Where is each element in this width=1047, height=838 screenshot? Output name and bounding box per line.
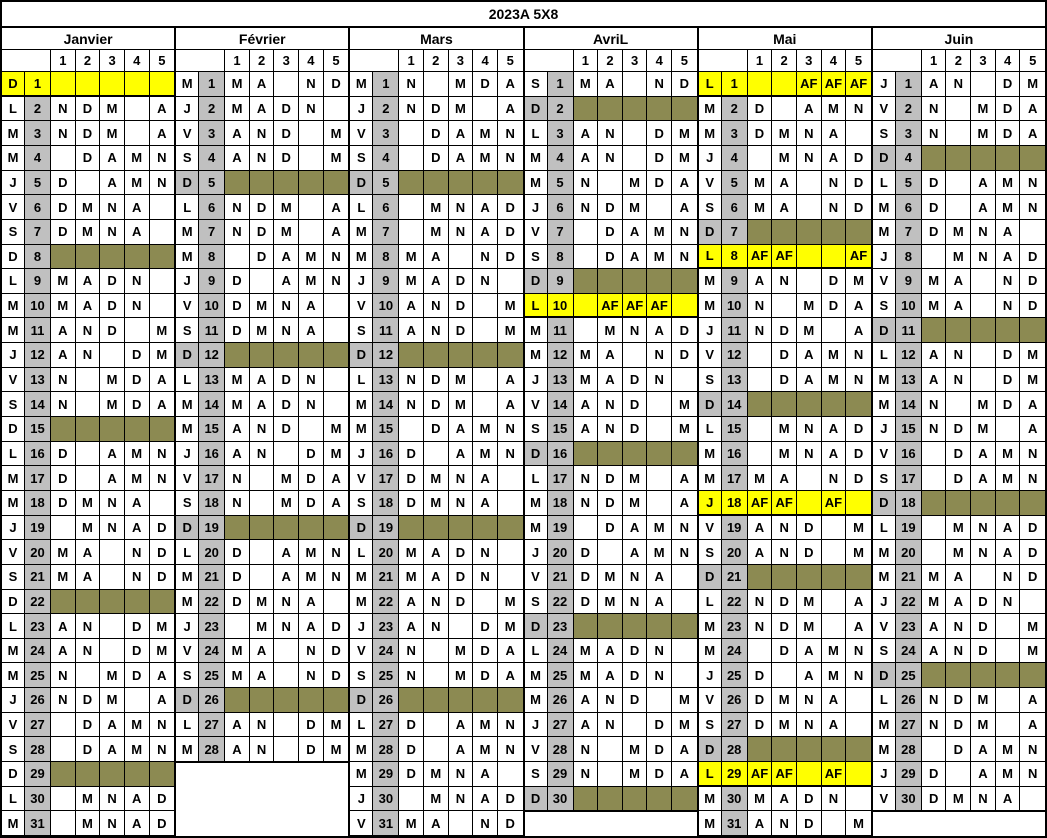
day-letter-cell: M (176, 565, 199, 590)
shift-cell (473, 590, 498, 615)
shift-cell: D (225, 269, 250, 294)
day-letter-cell: D (525, 614, 548, 639)
day-letter-cell: J (873, 762, 896, 787)
shift-cell: D (996, 392, 1021, 417)
shift-cell: D (324, 72, 349, 97)
shift-cell (598, 442, 623, 467)
shift-cell (225, 343, 250, 368)
shift-cell: A (623, 220, 648, 245)
shift-cell: D (846, 171, 871, 196)
day-number-cell: 14 (199, 392, 225, 417)
shift-cell (797, 466, 822, 491)
shift-cell: N (647, 663, 672, 688)
shift-cell (623, 72, 648, 97)
day-number-cell: 11 (25, 318, 51, 343)
shift-cell: A (922, 639, 947, 664)
shift-cell: M (76, 516, 101, 541)
shift-cell: M (76, 787, 101, 812)
shift-cell: N (996, 294, 1021, 319)
day-letter-cell: J (350, 97, 373, 122)
shift-cell: D (274, 392, 299, 417)
shift-cell: N (100, 811, 125, 836)
day-number-cell: 16 (373, 442, 399, 467)
day-number-cell: 13 (722, 368, 748, 393)
shift-cell: A (574, 146, 599, 171)
shift-cell: D (125, 663, 150, 688)
shift-cell (822, 737, 847, 762)
day-number-cell: 12 (373, 343, 399, 368)
shift-cell: M (449, 392, 474, 417)
shift-cell (150, 417, 175, 442)
shift-cell: M (971, 392, 996, 417)
shift-cell: D (299, 442, 324, 467)
shift-cell: M (324, 121, 349, 146)
shift-cell: M (424, 195, 449, 220)
shift-cell (672, 565, 697, 590)
shift-cell: A (473, 787, 498, 812)
shift-cell (125, 245, 150, 270)
shift-cell: N (100, 491, 125, 516)
shift-cell: D (424, 392, 449, 417)
shift-cell: A (76, 269, 101, 294)
day-letter-cell: L (873, 171, 896, 196)
shift-cell: N (797, 121, 822, 146)
shift-cell: A (498, 368, 523, 393)
shift-cell: D (125, 343, 150, 368)
day-number-cell: 9 (25, 269, 51, 294)
shift-cell (971, 294, 996, 319)
shift-cell: A (598, 343, 623, 368)
day-number-cell: 8 (548, 245, 574, 270)
day-letter-cell: S (176, 663, 199, 688)
day-number-cell: 11 (896, 318, 922, 343)
day-letter-cell: J (2, 516, 25, 541)
shift-cell (922, 466, 947, 491)
day-number-cell: 7 (548, 220, 574, 245)
month-column: Février12345M1MANDJ2MADNV3ANDMS4ANDMD5L6… (176, 28, 350, 836)
shift-cell (1020, 491, 1045, 516)
day-number-cell: 13 (25, 368, 51, 393)
shift-cell: M (996, 466, 1021, 491)
shift-cell: D (399, 762, 424, 787)
shift-cell: A (1020, 417, 1045, 442)
shift-cell (846, 565, 871, 590)
shift-cell: M (324, 146, 349, 171)
day-number-cell: 4 (722, 146, 748, 171)
shift-cell (772, 663, 797, 688)
shift-cell: D (399, 442, 424, 467)
shift-cell (125, 318, 150, 343)
day-number-cell: 8 (199, 245, 225, 270)
shift-cell: A (822, 713, 847, 738)
day-number-cell: 27 (896, 713, 922, 738)
shift-cell: A (424, 565, 449, 590)
shift-cell: M (672, 146, 697, 171)
shift-cell: N (51, 663, 76, 688)
shift-cell: N (399, 663, 424, 688)
shift-cell (623, 343, 648, 368)
shift-cell: D (125, 614, 150, 639)
shift-cell (996, 318, 1021, 343)
day-number-cell: 30 (896, 787, 922, 812)
empty-month-tail (525, 811, 697, 836)
shift-cell: A (672, 195, 697, 220)
day-letter-cell: L (350, 713, 373, 738)
shift-cell: N (100, 220, 125, 245)
shift-cell (274, 688, 299, 713)
day-letter-cell: L (2, 442, 25, 467)
shift-cell (922, 245, 947, 270)
shift-cell: D (324, 663, 349, 688)
shift-cell: N (274, 318, 299, 343)
shift-cell (498, 762, 523, 787)
shift-cell: D (1020, 294, 1045, 319)
day-number-cell: 17 (373, 466, 399, 491)
shift-cell (399, 787, 424, 812)
shift-cell: M (623, 466, 648, 491)
shift-cell: D (946, 737, 971, 762)
day-letter-cell: L (873, 688, 896, 713)
shift-cell: M (1020, 639, 1045, 664)
day-letter-cell: D (873, 318, 896, 343)
day-letter-cell: L (873, 343, 896, 368)
day-number-cell: 11 (373, 318, 399, 343)
shift-cell (424, 737, 449, 762)
day-letter-cell: M (873, 737, 896, 762)
shift-cell (299, 516, 324, 541)
shift-cell: D (100, 269, 125, 294)
day-number-cell: 9 (199, 269, 225, 294)
shift-cell (51, 146, 76, 171)
month-name: Février (176, 28, 348, 50)
day-number-cell: 14 (548, 392, 574, 417)
shift-cell: D (449, 565, 474, 590)
shift-cell: A (623, 516, 648, 541)
shift-cell: D (922, 195, 947, 220)
shift-cell (598, 737, 623, 762)
shift-cell: N (797, 146, 822, 171)
day-letter-cell: S (2, 220, 25, 245)
day-letter-cell: V (525, 220, 548, 245)
shift-cell: M (449, 663, 474, 688)
shift-cell (772, 737, 797, 762)
shift-cell (250, 269, 275, 294)
shift-cell (574, 318, 599, 343)
shift-cell: D (76, 146, 101, 171)
shift-cell: AF (772, 762, 797, 787)
shift-cell: M (946, 245, 971, 270)
shift-cell (598, 540, 623, 565)
day-number-cell: 25 (548, 663, 574, 688)
shift-cell: M (971, 713, 996, 738)
shift-cell: D (51, 491, 76, 516)
shift-cell: D (623, 368, 648, 393)
shift-cell: A (250, 368, 275, 393)
day-letter-cell: J (873, 72, 896, 97)
shift-cell: N (150, 171, 175, 196)
shift-cell: D (76, 737, 101, 762)
shift-cell (797, 392, 822, 417)
shift-cell: D (623, 688, 648, 713)
shift-cell: A (473, 195, 498, 220)
shift-cell (225, 245, 250, 270)
shift-cell: M (498, 590, 523, 615)
day-letter-cell: M (699, 639, 722, 664)
shift-cell: A (748, 516, 773, 541)
shift-cell (1020, 663, 1045, 688)
shift-cell: A (672, 466, 697, 491)
day-letter-cell: M (350, 565, 373, 590)
shift-cell (922, 442, 947, 467)
shift-cell (598, 614, 623, 639)
day-letter-cell: S (176, 491, 199, 516)
shift-cell: A (76, 565, 101, 590)
shift-cell (449, 811, 474, 836)
day-letter-cell: L (699, 762, 722, 787)
shift-cell: D (623, 392, 648, 417)
shift-cell: A (150, 663, 175, 688)
shift-cell: N (846, 97, 871, 122)
shift-cell: N (598, 688, 623, 713)
shift-cell (424, 663, 449, 688)
shift-cell: A (797, 639, 822, 664)
shift-cell (449, 614, 474, 639)
shift-cell: AF (748, 245, 773, 270)
day-number-cell: 5 (896, 171, 922, 196)
shift-cell (846, 787, 871, 812)
shift-cell (150, 590, 175, 615)
shift-cell: D (324, 639, 349, 664)
shift-cell: N (100, 516, 125, 541)
shift-cell: D (748, 121, 773, 146)
shift-cell (996, 146, 1021, 171)
shift-cell: N (797, 442, 822, 467)
shift-cell: A (150, 97, 175, 122)
shift-cell (971, 146, 996, 171)
day-letter-cell: V (350, 294, 373, 319)
months-grid: Janvier12345D1L2NDMAM3NDMAM4DAMNJ5DAMNV6… (2, 28, 1045, 836)
shift-cell (324, 343, 349, 368)
shift-cell: M (971, 121, 996, 146)
shift-cell: A (399, 318, 424, 343)
shift-cell: A (274, 540, 299, 565)
shift-cell (946, 491, 971, 516)
day-letter-cell: D (873, 146, 896, 171)
shift-cell (772, 392, 797, 417)
shift-cell: A (971, 737, 996, 762)
shift-cell: N (299, 97, 324, 122)
shift-cell: AF (822, 72, 847, 97)
day-letter-cell: M (525, 318, 548, 343)
shift-cell: A (748, 540, 773, 565)
shift-cell: AF (772, 491, 797, 516)
shift-cell (598, 269, 623, 294)
day-letter-cell: L (2, 97, 25, 122)
shift-cell: N (399, 392, 424, 417)
shift-cell: A (225, 146, 250, 171)
shift-cell (672, 590, 697, 615)
shift-cell: N (250, 442, 275, 467)
shift-cell: D (946, 417, 971, 442)
shift-cell: N (1020, 466, 1045, 491)
shift-cell: M (748, 787, 773, 812)
shift-cell (647, 491, 672, 516)
shift-cell: A (946, 590, 971, 615)
shift-cell (100, 540, 125, 565)
day-letter-cell: D (699, 737, 722, 762)
day-number-cell: 21 (548, 565, 574, 590)
day-number-cell: 21 (199, 565, 225, 590)
shift-cell: M (399, 565, 424, 590)
shift-cell: A (822, 121, 847, 146)
shift-cell (76, 466, 101, 491)
day-letter-cell: M (525, 516, 548, 541)
shift-cell: D (946, 442, 971, 467)
shift-cell: A (424, 269, 449, 294)
shift-cell (598, 762, 623, 787)
day-number-cell: 1 (722, 72, 748, 97)
shift-cell: N (424, 318, 449, 343)
shift-column-number: 1 (51, 50, 76, 71)
shift-cell: N (449, 491, 474, 516)
shift-cell: D (424, 417, 449, 442)
shift-cell: D (100, 294, 125, 319)
shift-cell: D (971, 614, 996, 639)
shift-cell: N (125, 269, 150, 294)
shift-cell: D (598, 245, 623, 270)
shift-cell: A (498, 639, 523, 664)
day-letter-cell: M (699, 269, 722, 294)
shift-cell: M (922, 565, 947, 590)
day-number-cell: 8 (25, 245, 51, 270)
shift-cell: M (574, 72, 599, 97)
shift-cell (574, 97, 599, 122)
shift-cell: D (996, 368, 1021, 393)
shift-cell: D (449, 590, 474, 615)
shift-cell: A (623, 540, 648, 565)
day-number-cell: 25 (373, 663, 399, 688)
shift-cell: M (324, 713, 349, 738)
shift-cell: A (449, 442, 474, 467)
shift-cell: A (498, 72, 523, 97)
day-number-cell: 30 (722, 787, 748, 812)
shift-cell: AF (846, 245, 871, 270)
shift-cell (647, 614, 672, 639)
shift-cell: A (473, 220, 498, 245)
shift-cell (324, 294, 349, 319)
shift-cell: D (250, 195, 275, 220)
shift-cell: D (971, 639, 996, 664)
shift-cell: M (250, 318, 275, 343)
shift-cell: D (424, 121, 449, 146)
shift-cell: D (598, 466, 623, 491)
shift-cell: M (225, 392, 250, 417)
day-letter-cell: D (176, 171, 199, 196)
shift-cell (76, 72, 101, 97)
shift-cell: D (473, 614, 498, 639)
day-letter-cell: S (2, 565, 25, 590)
shift-cell: M (647, 516, 672, 541)
day-number-cell: 10 (548, 294, 574, 319)
shift-cell: N (51, 392, 76, 417)
shift-cell: A (1020, 392, 1045, 417)
shift-cell: D (125, 368, 150, 393)
shift-cell (250, 171, 275, 196)
shift-cell: N (250, 417, 275, 442)
shift-cell (473, 171, 498, 196)
shift-cell: D (150, 540, 175, 565)
day-number-cell: 4 (896, 146, 922, 171)
shift-cell: D (996, 97, 1021, 122)
day-number-cell: 28 (896, 737, 922, 762)
shift-cell (274, 171, 299, 196)
day-letter-cell: M (2, 294, 25, 319)
day-number-cell: 9 (896, 269, 922, 294)
shift-cell: A (250, 72, 275, 97)
day-number-cell: 2 (722, 97, 748, 122)
shift-cell: N (449, 762, 474, 787)
shift-cell (473, 343, 498, 368)
shift-cell: D (946, 713, 971, 738)
shift-cell: N (598, 146, 623, 171)
day-number-cell: 7 (896, 220, 922, 245)
shift-cell (748, 368, 773, 393)
day-letter-cell: V (350, 639, 373, 664)
shift-cell: D (846, 195, 871, 220)
day-number-cell: 21 (722, 565, 748, 590)
shift-column-number: 4 (996, 50, 1021, 71)
day-letter-cell: J (176, 614, 199, 639)
shift-cell: M (100, 368, 125, 393)
shift-cell: N (574, 171, 599, 196)
shift-cell (797, 195, 822, 220)
shift-cell (971, 663, 996, 688)
day-letter-cell: M (350, 392, 373, 417)
day-letter-cell: L (873, 516, 896, 541)
shift-cell: M (150, 639, 175, 664)
shift-cell: N (822, 195, 847, 220)
day-letter-cell: V (350, 121, 373, 146)
day-letter-cell: M (2, 146, 25, 171)
shift-cell: D (274, 97, 299, 122)
shift-cell (473, 688, 498, 713)
day-letter-cell: V (873, 787, 896, 812)
shift-cell: M (125, 146, 150, 171)
shift-cell (922, 491, 947, 516)
shift-cell: N (473, 245, 498, 270)
day-letter-cell: D (176, 516, 199, 541)
shift-cell (399, 146, 424, 171)
day-letter-cell: M (176, 72, 199, 97)
shift-columns-header: 12345 (525, 50, 697, 72)
day-number-cell: 26 (722, 688, 748, 713)
shift-cell (822, 614, 847, 639)
shift-cell: M (498, 294, 523, 319)
day-letter-cell: M (350, 590, 373, 615)
shift-cell (574, 614, 599, 639)
shift-cell: N (623, 318, 648, 343)
shift-cell: N (1020, 195, 1045, 220)
month-name: Janvier (2, 28, 174, 50)
shift-cell (623, 146, 648, 171)
shift-cell: D (324, 614, 349, 639)
shift-cell: M (449, 72, 474, 97)
shift-cell: M (946, 220, 971, 245)
shift-cell (996, 417, 1021, 442)
day-number-cell: 28 (722, 737, 748, 762)
day-letter-cell: M (350, 72, 373, 97)
shift-column-number: 4 (125, 50, 150, 71)
